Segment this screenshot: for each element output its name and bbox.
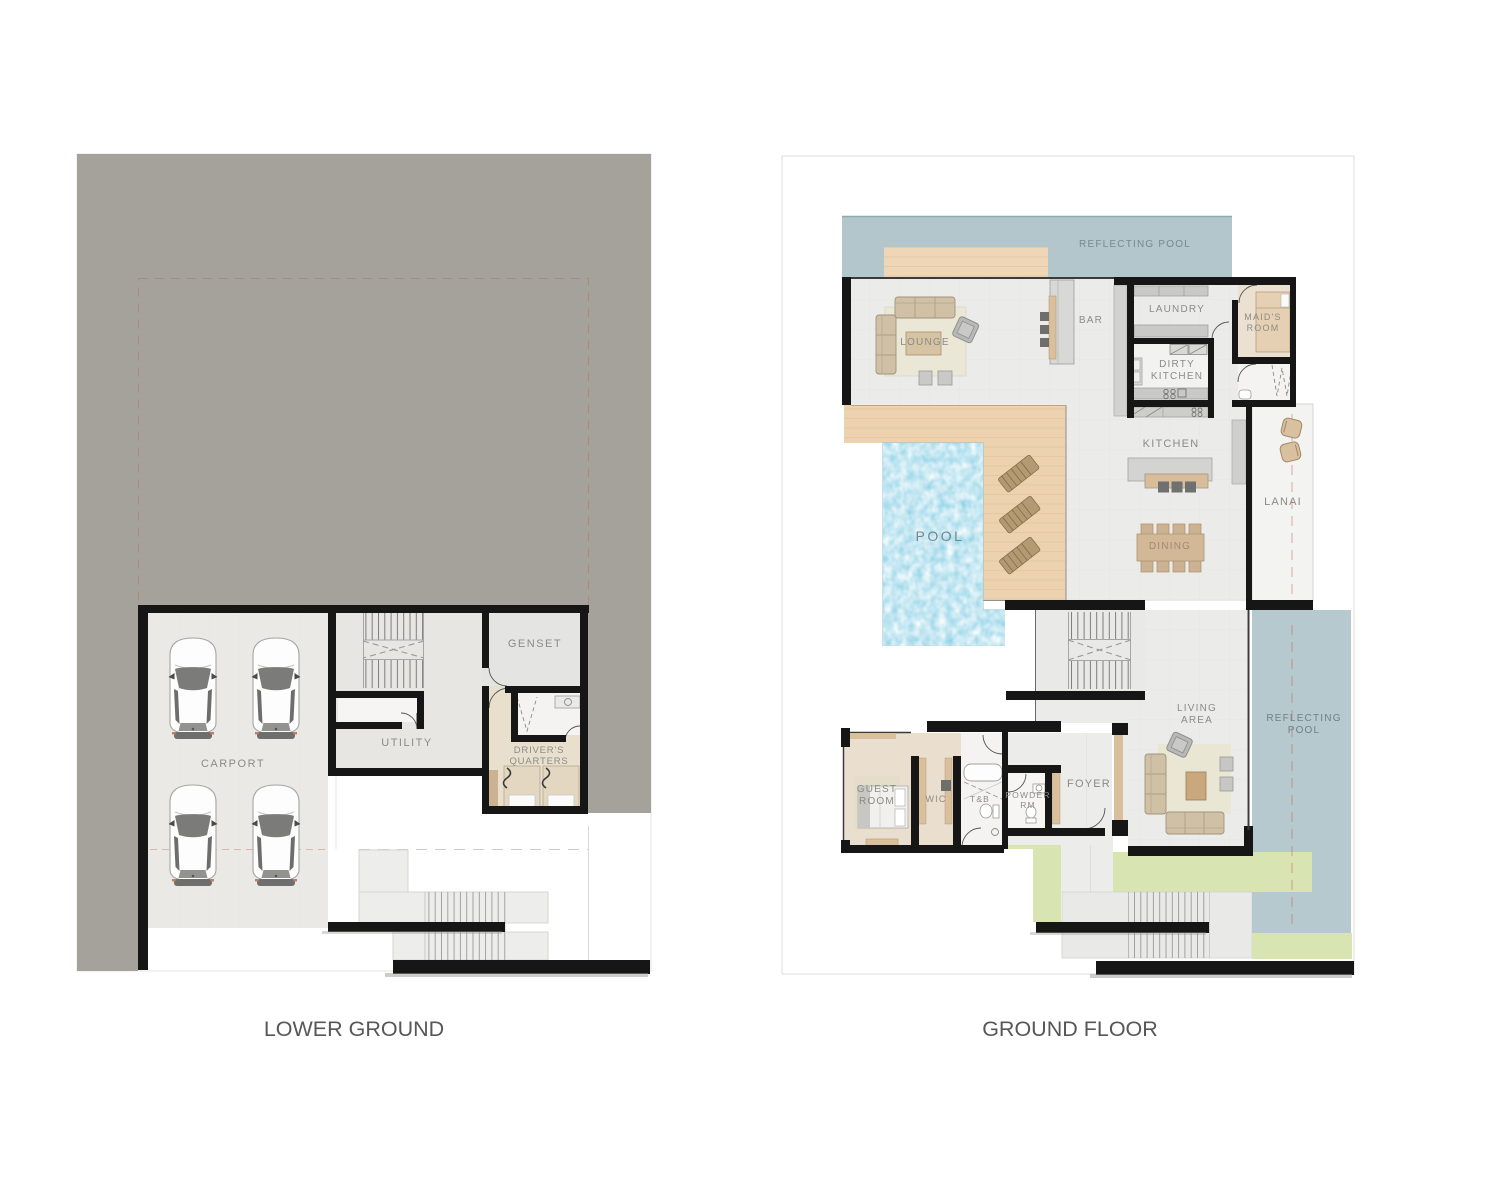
svg-text:ROOM: ROOM xyxy=(859,796,895,807)
svg-text:CARPORT: CARPORT xyxy=(201,758,265,770)
svg-text:FOYER: FOYER xyxy=(1067,778,1111,790)
svg-text:KITCHEN: KITCHEN xyxy=(1151,371,1203,382)
svg-text:LOUNGE: LOUNGE xyxy=(900,337,949,348)
svg-text:AREA: AREA xyxy=(1181,715,1213,726)
svg-text:BAR: BAR xyxy=(1079,315,1103,326)
svg-text:LANAI: LANAI xyxy=(1264,496,1302,508)
svg-text:MAID'S: MAID'S xyxy=(1244,312,1281,322)
svg-text:DINING: DINING xyxy=(1149,541,1191,552)
svg-text:ROOM: ROOM xyxy=(1247,323,1280,333)
svg-text:REFLECTING POOL: REFLECTING POOL xyxy=(1079,239,1191,250)
svg-text:GUEST: GUEST xyxy=(857,784,897,795)
svg-text:REFLECTING: REFLECTING xyxy=(1266,713,1341,724)
svg-text:RM: RM xyxy=(1020,800,1036,810)
svg-text:GROUND FLOOR: GROUND FLOOR xyxy=(982,1017,1158,1041)
svg-text:DRIVER'S: DRIVER'S xyxy=(514,745,564,756)
svg-text:KITCHEN: KITCHEN xyxy=(1143,438,1200,450)
svg-text:GENSET: GENSET xyxy=(508,638,562,650)
svg-text:LAUNDRY: LAUNDRY xyxy=(1149,304,1205,315)
svg-text:DIRTY: DIRTY xyxy=(1159,359,1195,370)
svg-text:WIC: WIC xyxy=(925,794,946,804)
svg-text:POWDER: POWDER xyxy=(1005,790,1050,800)
svg-text:QUARTERS: QUARTERS xyxy=(509,756,568,767)
svg-text:LOWER GROUND: LOWER GROUND xyxy=(264,1017,444,1041)
svg-text:UTILITY: UTILITY xyxy=(381,737,432,749)
svg-text:POOL: POOL xyxy=(1288,725,1321,736)
svg-text:T&B: T&B xyxy=(970,794,990,804)
svg-text:POOL: POOL xyxy=(916,528,965,544)
svg-text:LIVING: LIVING xyxy=(1177,703,1217,714)
